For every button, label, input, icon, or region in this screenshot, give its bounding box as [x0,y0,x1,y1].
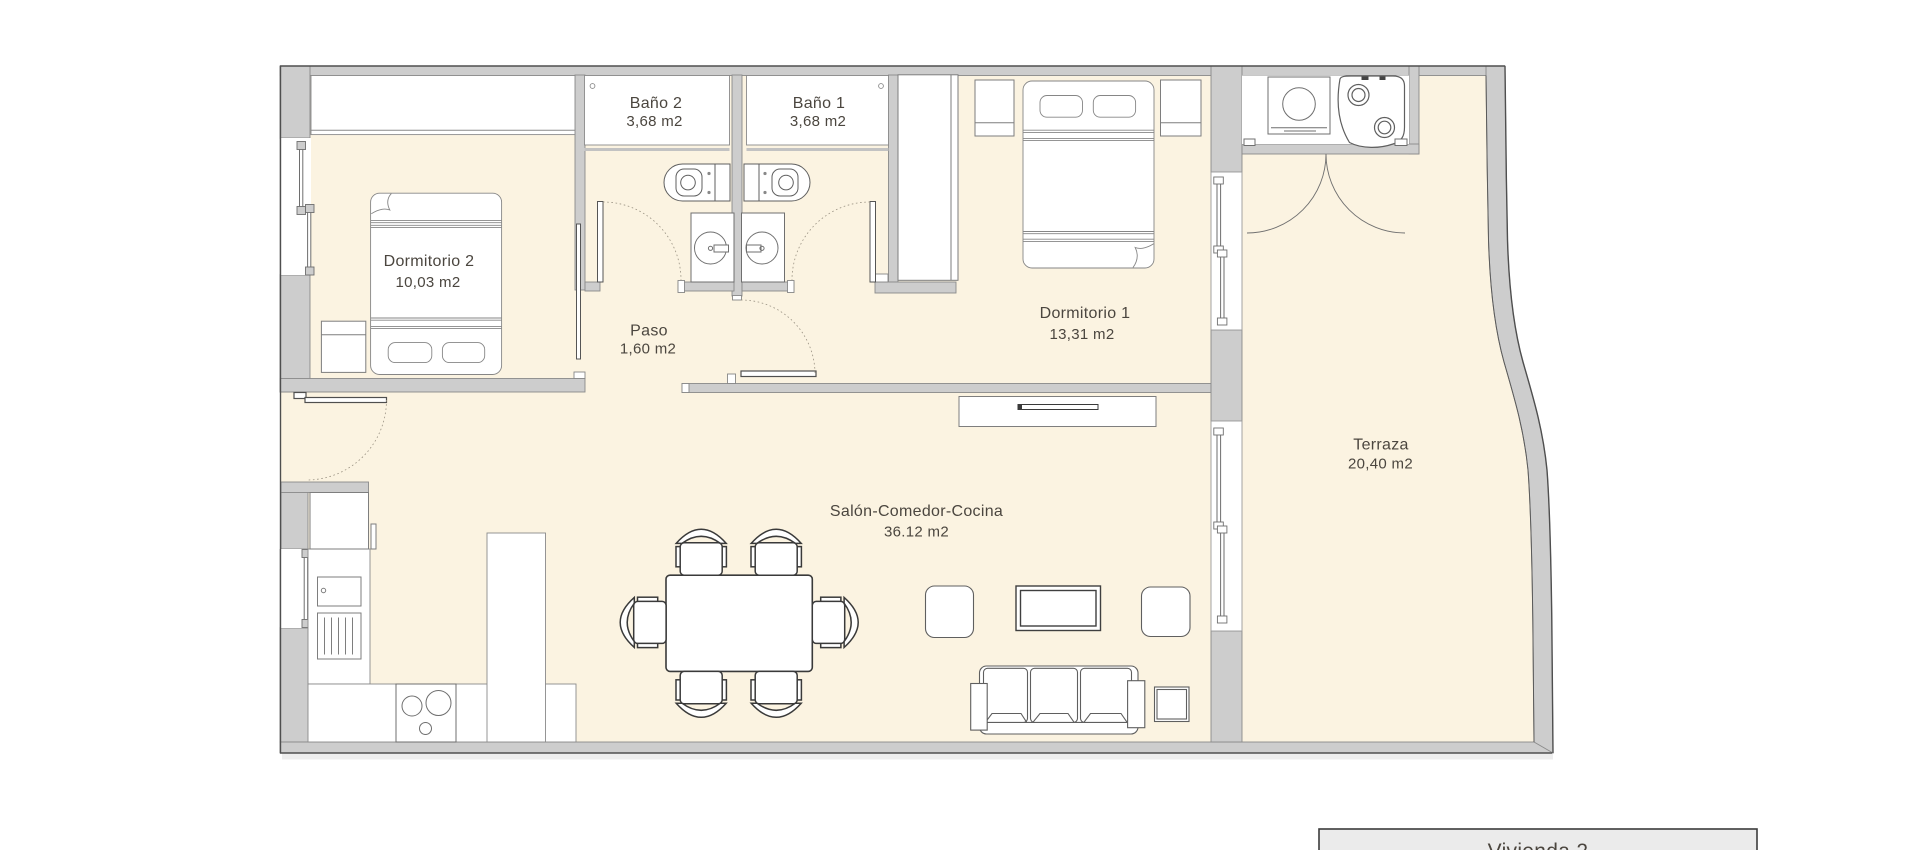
svg-text:Terraza: Terraza [1353,437,1408,454]
svg-text:36.12 m2: 36.12 m2 [884,524,949,541]
svg-text:Baño 1: Baño 1 [793,95,846,112]
svg-text:Baño 2: Baño 2 [630,95,683,112]
svg-text:Vivienda 2: Vivienda 2 [1488,840,1589,850]
svg-text:13,31 m2: 13,31 m2 [1050,326,1115,343]
svg-text:3,68 m2: 3,68 m2 [626,113,682,130]
svg-text:1,60 m2: 1,60 m2 [620,341,676,358]
svg-text:Salón-Comedor-Cocina: Salón-Comedor-Cocina [830,503,1003,520]
svg-text:20,40 m2: 20,40 m2 [1348,456,1413,473]
svg-text:10,03 m2: 10,03 m2 [396,274,461,291]
svg-text:Dormitorio 2: Dormitorio 2 [384,253,475,270]
svg-text:3,68 m2: 3,68 m2 [790,113,846,130]
svg-text:Paso: Paso [630,323,668,340]
svg-text:Dormitorio 1: Dormitorio 1 [1040,305,1131,322]
